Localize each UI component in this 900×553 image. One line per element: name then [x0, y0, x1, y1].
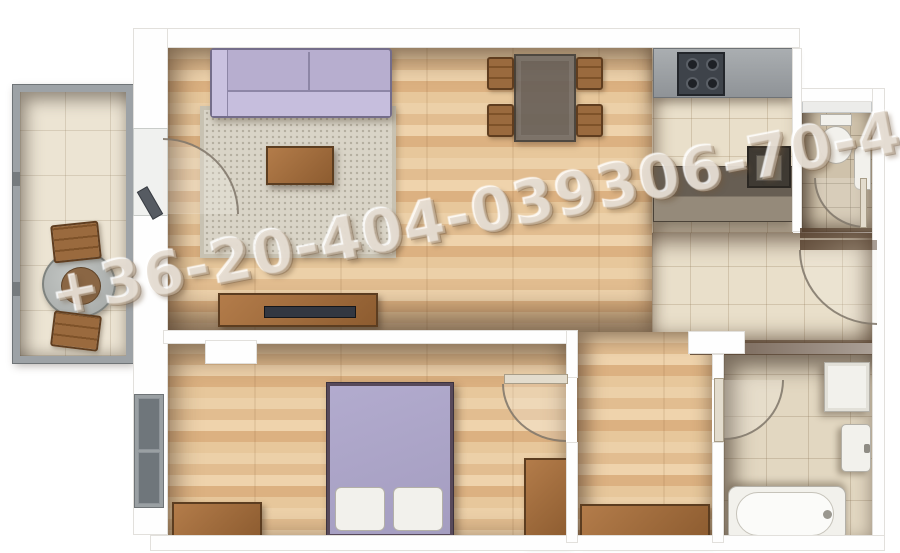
- wardrobe: [524, 458, 568, 543]
- balcony-rail-post: [13, 282, 20, 296]
- wall-pier-hall: [688, 331, 745, 354]
- wall-bedroom-corridor-lower: [566, 442, 578, 543]
- wall-bedroom-corridor-upper: [566, 330, 578, 378]
- bed-pillow: [393, 487, 443, 531]
- tv-stand: [218, 293, 378, 327]
- entry-door-leaf: [800, 240, 877, 250]
- wall-corridor-bathroom-lower: [712, 442, 724, 543]
- wall-bottom: [150, 535, 885, 551]
- washing-machine: [824, 362, 870, 412]
- coffee-table: [266, 146, 334, 185]
- bed: [326, 382, 454, 540]
- corridor-floor: [577, 332, 712, 543]
- bedroom-door-leaf: [504, 374, 568, 384]
- sofa-cushion-divider: [308, 52, 310, 92]
- stove-burner: [686, 58, 699, 71]
- sink-faucet: [864, 444, 870, 453]
- sofa-armrest: [212, 50, 228, 116]
- dining-chair: [576, 104, 603, 137]
- window-pane: [138, 452, 160, 504]
- dining-table: [514, 54, 576, 142]
- tv: [264, 306, 356, 318]
- wall-top: [133, 28, 800, 48]
- stove: [677, 52, 725, 96]
- bathtub-basin: [736, 492, 834, 536]
- wall-wc-hall: [800, 228, 872, 238]
- dining-chair: [487, 104, 514, 137]
- window-pane: [138, 398, 160, 450]
- floor-plan: +36-20-404-039306-70-44: [0, 0, 900, 553]
- bathroom-door-leaf: [714, 378, 724, 442]
- dining-chair: [576, 57, 603, 90]
- sofa: [210, 48, 392, 118]
- balcony-rail-post: [13, 172, 20, 186]
- stove-burner: [686, 77, 699, 90]
- bathroom-sink: [841, 424, 871, 472]
- bed-pillow: [335, 487, 385, 531]
- wall-corridor-bathroom-upper: [712, 354, 724, 380]
- wall-pier: [205, 340, 257, 364]
- sofa-seat: [228, 90, 390, 116]
- bathtub-faucet: [823, 510, 832, 519]
- stove-burner: [706, 77, 719, 90]
- bedroom-window: [134, 394, 164, 508]
- bathtub: [728, 486, 846, 542]
- stove-burner: [706, 58, 719, 71]
- bedroom-floor: [168, 343, 566, 543]
- wc-door-leaf: [860, 178, 867, 228]
- dining-chair: [487, 57, 514, 90]
